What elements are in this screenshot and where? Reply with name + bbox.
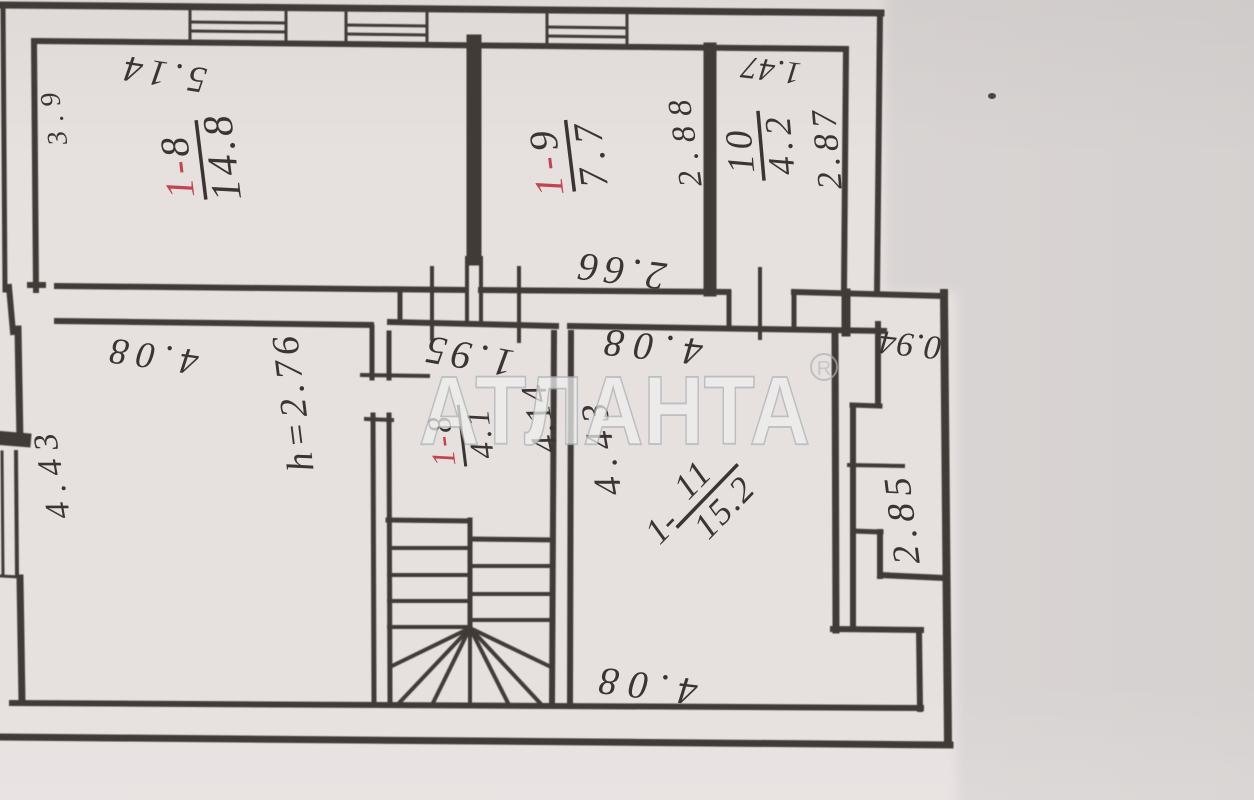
- svg-text:1.47: 1.47: [738, 49, 803, 92]
- svg-text:7.7: 7.7: [564, 114, 617, 190]
- svg-text:1-8: 1-8: [151, 131, 204, 201]
- svg-text:АТЛАНТА: АТЛАНТА: [419, 356, 810, 465]
- svg-text:R: R: [817, 358, 831, 380]
- svg-text:2.87: 2.87: [803, 103, 849, 191]
- svg-text:0.94: 0.94: [876, 323, 943, 366]
- svg-text:4.2: 4.2: [757, 109, 803, 177]
- svg-text:10: 10: [717, 124, 763, 175]
